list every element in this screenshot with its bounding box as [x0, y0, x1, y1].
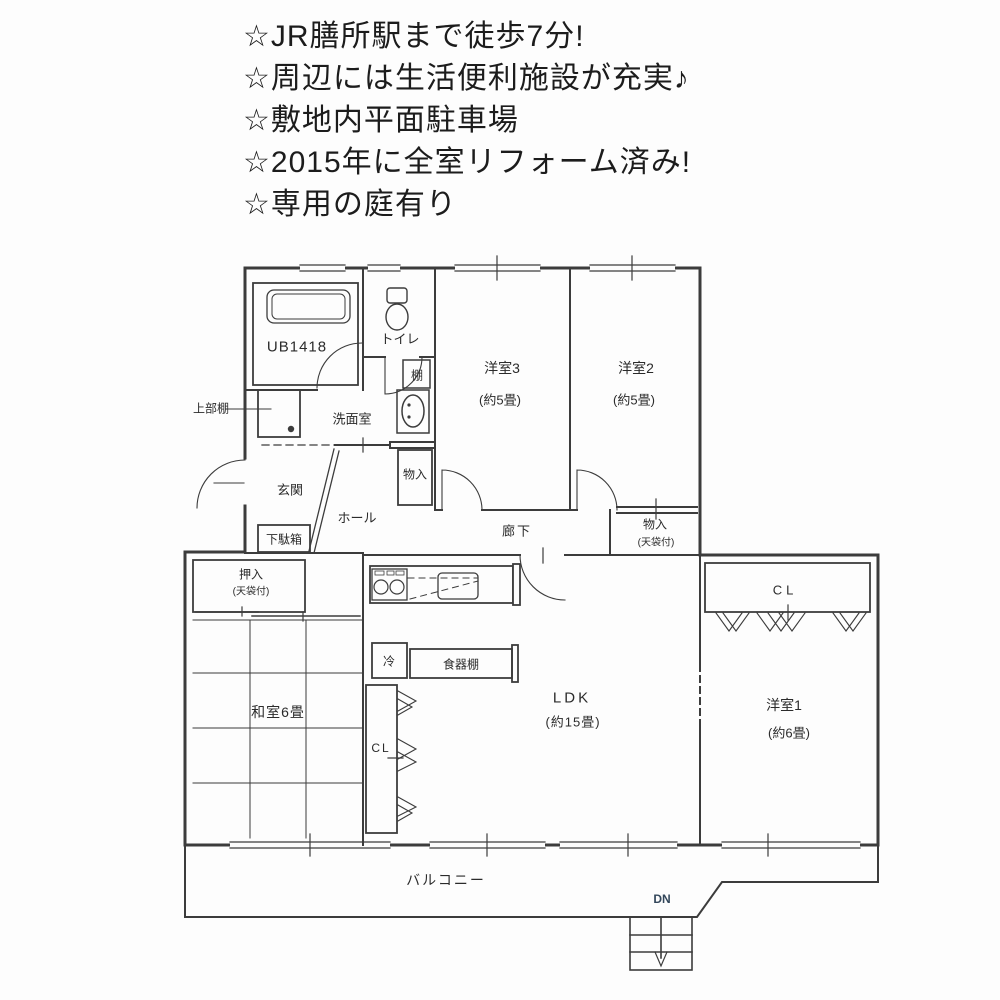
floor-plan-page: ☆JR膳所駅まで徒歩7分! ☆周辺には生活便利施設が充実♪ ☆敷地内平面駐車場 … — [0, 0, 1000, 1000]
room-size-west3: (約5畳) — [479, 390, 521, 409]
label-hall-storage: 物入 — [403, 466, 427, 483]
label-closet-left: CL — [371, 741, 390, 755]
label-storage2-note: (天袋付) — [638, 534, 675, 549]
room-label-corridor: 廊下 — [502, 521, 532, 540]
stairs-icon — [630, 917, 692, 970]
closet-left — [366, 685, 416, 833]
label-shoe-box: 下駄箱 — [266, 531, 302, 548]
label-down-stairs: DN — [653, 892, 670, 906]
room-label-toilet: トイレ — [380, 329, 419, 348]
label-closet-right: CL — [773, 583, 798, 598]
label-shelf: 棚 — [411, 367, 423, 384]
toilet-icon — [386, 288, 408, 330]
room-label-balcony: バルコニー — [406, 870, 486, 890]
room-label-hall: ホール — [337, 508, 376, 527]
room-size-west1: (約6畳) — [768, 723, 810, 742]
room-size-west2: (約5畳) — [613, 390, 655, 409]
label-upper-shelf: 上部棚 — [193, 400, 229, 417]
label-oshiire: 押入 — [239, 566, 263, 583]
room-label-west3: 洋室3 — [484, 358, 520, 378]
label-storage2: 物入 — [643, 516, 667, 533]
room-label-washitsu: 和室6畳 — [251, 702, 305, 722]
label-fridge: 冷 — [383, 653, 395, 670]
room-label-ldk: LDK — [553, 690, 591, 707]
room-label-washroom: 洗面室 — [332, 409, 371, 428]
kitchen-counter — [370, 564, 520, 605]
room-label-ub: UB1418 — [267, 339, 327, 356]
room-label-entrance: 玄関 — [277, 480, 303, 499]
bath-unit — [253, 283, 358, 385]
balcony-outline — [185, 845, 878, 917]
label-cupboard: 食器棚 — [443, 656, 479, 673]
floor-plan-drawing — [0, 0, 1000, 1000]
label-oshiire-note: (天袋付) — [233, 583, 270, 598]
wall-ticks — [363, 438, 788, 758]
tatami-grid — [193, 620, 363, 838]
room-label-west2: 洋室2 — [618, 358, 654, 378]
room-label-west1: 洋室1 — [766, 695, 802, 715]
washing-machine-icon — [226, 390, 300, 437]
oshiire-closet — [193, 560, 360, 621]
room-size-ldk: (約15畳) — [545, 712, 600, 731]
